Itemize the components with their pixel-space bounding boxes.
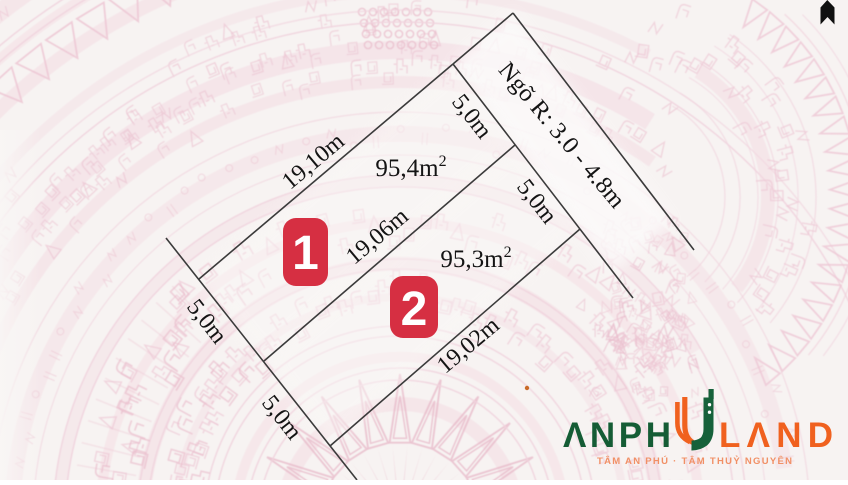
svg-text:95,3m2: 95,3m2 [440, 244, 511, 273]
svg-text:95,4m2: 95,4m2 [375, 153, 446, 182]
svg-text:2: 2 [401, 283, 428, 336]
svg-text:LΛND: LΛND [719, 416, 833, 455]
svg-text:TÂM AN PHÚ · TÂM THUỶ NGUYÊN: TÂM AN PHÚ · TÂM THUỶ NGUYÊN [597, 455, 792, 467]
svg-text:1: 1 [292, 227, 319, 280]
